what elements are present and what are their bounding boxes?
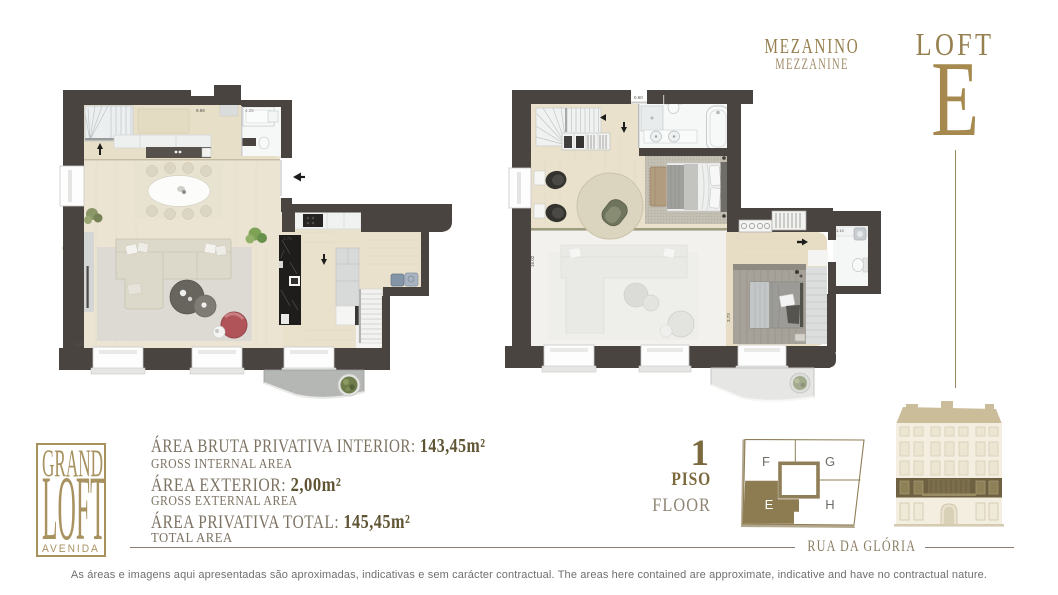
svg-text:9.88: 9.88 [196, 108, 205, 113]
svg-text:3.73: 3.73 [726, 313, 731, 322]
svg-text:F: F [762, 454, 770, 469]
svg-text:E: E [765, 497, 774, 512]
svg-text:1.74: 1.74 [283, 236, 292, 241]
svg-text:4.25: 4.25 [245, 108, 254, 113]
svg-text:0.60: 0.60 [634, 95, 643, 100]
svg-text:1.19: 1.19 [836, 228, 845, 233]
svg-text:H: H [825, 497, 834, 512]
svg-text:9.88: 9.88 [75, 342, 84, 347]
svg-text:G: G [825, 454, 835, 469]
svg-text:16.02: 16.02 [530, 255, 535, 267]
